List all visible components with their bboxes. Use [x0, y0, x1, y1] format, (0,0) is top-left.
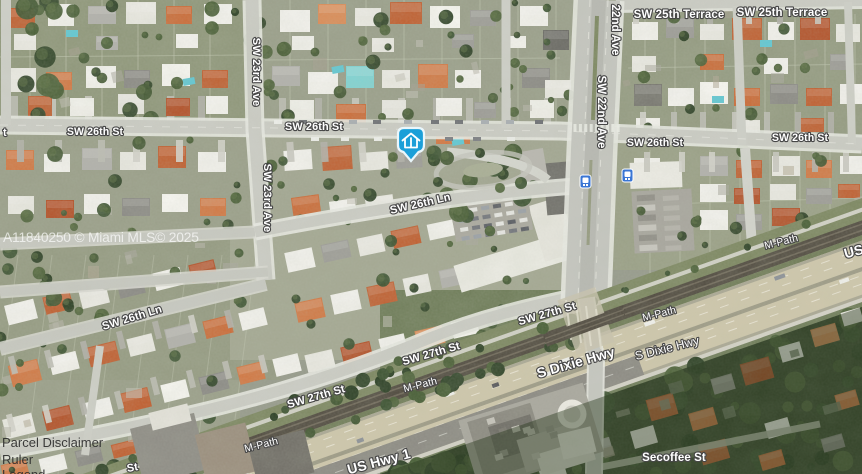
- svg-text:SW 25th Terrace: SW 25th Terrace: [634, 9, 725, 21]
- svg-text:SW 26th St: SW 26th St: [772, 132, 829, 144]
- svg-text:t: t: [3, 127, 7, 139]
- svg-text:SW 26th St: SW 26th St: [285, 121, 343, 133]
- svg-text:SW 23rd Ave: SW 23rd Ave: [250, 38, 262, 107]
- svg-text:Ruler: Ruler: [2, 452, 34, 467]
- svg-text:SW 23rd Ave: SW 23rd Ave: [261, 164, 273, 233]
- svg-text:Secoffee St: Secoffee St: [642, 452, 706, 464]
- svg-text:A11840250 © Miami MLS© 2025: A11840250 © Miami MLS© 2025: [3, 230, 199, 245]
- svg-text:St: St: [126, 461, 139, 474]
- svg-text:Parcel Disclaimer: Parcel Disclaimer: [2, 435, 104, 450]
- svg-text:SW 22nd Ave: SW 22nd Ave: [595, 75, 607, 148]
- svg-text:SW 25th Terrace: SW 25th Terrace: [737, 7, 828, 19]
- svg-text:SW 26th St: SW 26th St: [67, 126, 124, 138]
- svg-text:SW 26th St: SW 26th St: [627, 137, 684, 149]
- svg-text:22nd Ave: 22nd Ave: [609, 4, 621, 55]
- svg-text:Legend: Legend: [2, 467, 45, 474]
